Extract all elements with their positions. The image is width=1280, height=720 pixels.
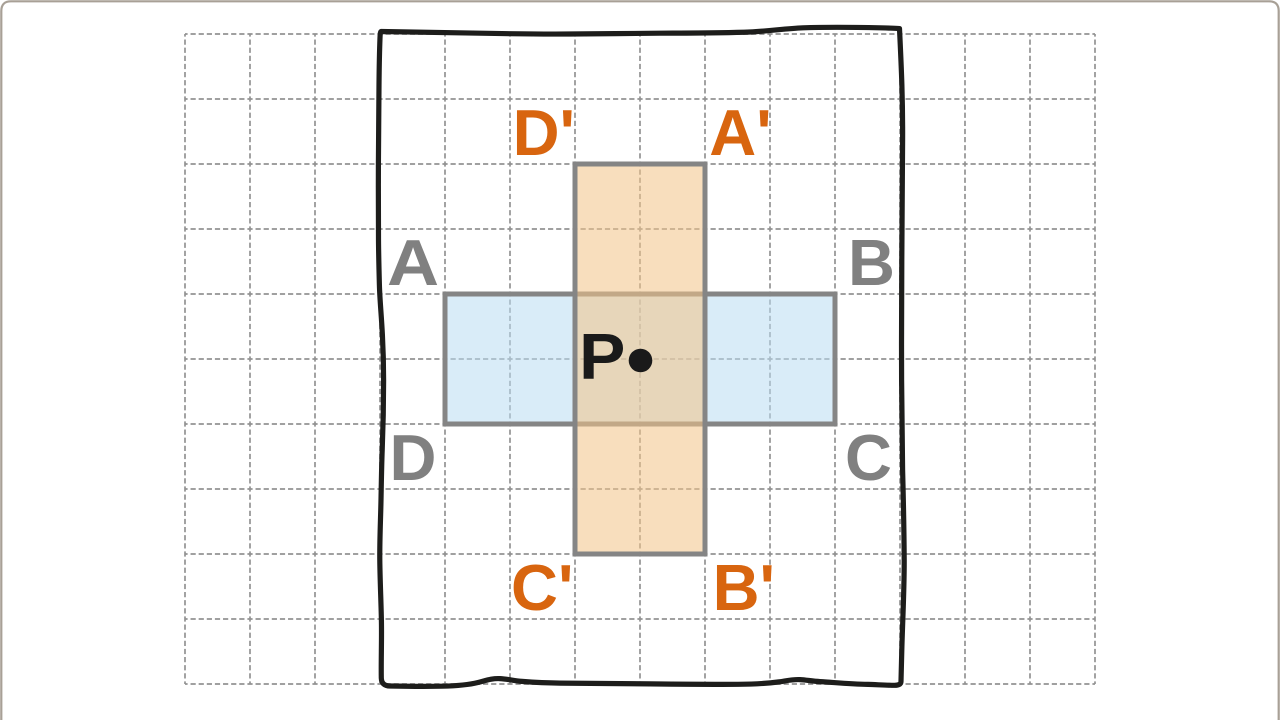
svg-text:A': A': [709, 96, 771, 169]
svg-text:C: C: [845, 421, 892, 494]
svg-text:D: D: [390, 421, 437, 494]
svg-text:D': D': [513, 96, 575, 169]
svg-text:B: B: [848, 226, 895, 299]
svg-text:C': C': [511, 551, 573, 624]
svg-text:A: A: [387, 226, 439, 299]
svg-text:B': B': [713, 551, 775, 624]
svg-text:P: P: [579, 321, 625, 393]
